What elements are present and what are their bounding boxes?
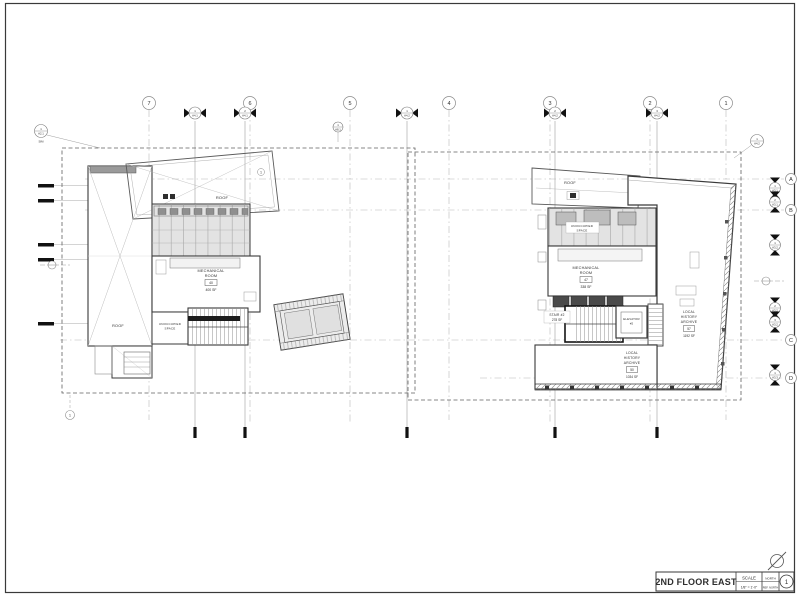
section-tick	[553, 427, 556, 438]
grid-bubbles-top: 7 6 5 4 3 2 1	[143, 97, 733, 110]
core-detail	[538, 215, 546, 229]
marker-sheet: A3.3	[772, 376, 778, 380]
drawing-sheet: 7 6 5 4 3 2 1 A B C D 1 A4.1	[0, 0, 800, 596]
right-mech-room: MECHANICAL ROOM 47 338 SF	[548, 246, 656, 296]
floor-plan-canvas: 7 6 5 4 3 2 1 A B C D 1 A4.1	[0, 0, 800, 596]
section-tick	[243, 427, 246, 438]
section-tick	[193, 427, 196, 438]
section-marker: 1 A3.2	[770, 235, 781, 256]
room-name: ELEVATOR	[623, 317, 640, 321]
section-markers-right: 1 A3.1 2 A3.1 1 A3.2 2 A3.2	[734, 135, 784, 386]
keynote-bubble: 1	[66, 395, 75, 420]
left-skylight-unit	[274, 294, 350, 350]
grid-bubble-label: 6	[248, 101, 251, 107]
datum-marker	[40, 261, 70, 269]
roof-tag: 1	[260, 171, 262, 175]
right-stair-flight2	[648, 304, 663, 346]
left-lower-room	[95, 346, 152, 378]
grid-bubble-label: C	[789, 338, 793, 344]
section-tick	[405, 427, 408, 438]
room-area: 1034 SF	[626, 375, 638, 379]
sheet-title: 2ND FLOOR EAST	[655, 577, 737, 587]
room-number: 50	[630, 368, 634, 372]
room-name: ARCHIVE	[624, 361, 641, 365]
room-number: 57	[687, 327, 691, 331]
wall-tick	[38, 322, 54, 326]
roof-label: ROOF	[564, 181, 576, 185]
room-number: 40	[209, 281, 213, 285]
grid-bubble-label: 1	[724, 101, 727, 107]
grid-bubble-label: B	[789, 208, 793, 214]
room-number: 47	[584, 278, 588, 282]
callout-bubble-sim: 1 A2.1 SIM	[35, 125, 101, 149]
floor-plan-right: ROOF UNOCCUPIED SPACE	[532, 168, 736, 390]
section-markers-top: 1 A4.1 2 A4.1 1 A4.2 2 A4.2	[184, 107, 668, 142]
room-name: LOCAL	[683, 310, 695, 314]
section-marker: 1 A3.3	[770, 365, 781, 386]
section-tick	[655, 427, 658, 438]
marker-sheet: A4.2	[654, 114, 660, 118]
callout-bubble: 1 A4.2	[734, 135, 764, 159]
grid-bubble-label: 2	[648, 101, 651, 107]
keynote-label: 1	[69, 414, 71, 418]
grid-bubble-label: D	[789, 376, 793, 382]
room-name: ROOM	[205, 274, 218, 278]
room-area: 278 SF	[552, 318, 562, 322]
right-stair: STAIR #2 278 SF	[544, 306, 623, 342]
section-marker: 3 A3.2	[770, 312, 781, 333]
room-name: #2	[630, 322, 634, 326]
room-name: HISTORY	[681, 315, 698, 319]
marker-sheet: A3.1	[772, 203, 778, 207]
room-name: UNOCCUPIED	[571, 224, 594, 228]
right-unoccupied-band: UNOCCUPIED SPACE	[548, 208, 656, 246]
scale-label: SCALE	[742, 576, 756, 581]
room-name: LOCAL	[626, 351, 638, 355]
marker-sheet: A3.2	[772, 323, 778, 327]
room-area: 338 SF	[581, 285, 592, 289]
room-name: ARCHIVE	[681, 320, 698, 324]
marker-sheet: A4.2	[552, 114, 558, 118]
grid-bubble-label: 3	[548, 101, 551, 107]
marker-sheet: A4.1	[242, 114, 248, 118]
grid-bubble-label: 5	[348, 101, 351, 107]
core-detail	[538, 252, 546, 262]
section-marker: 1 A4.2	[396, 107, 418, 119]
core-detail	[538, 300, 546, 310]
wall-tick	[38, 243, 54, 247]
room-area: 1192 SF	[683, 334, 695, 338]
datum-marker	[754, 277, 784, 285]
title-block: 2ND FLOOR EAST SCALE 1/8" = 1'-0" NORTH …	[655, 552, 794, 591]
grid-bubble-label: A	[789, 177, 793, 183]
room-area: 400 SF	[206, 288, 217, 292]
room-name: ROOM	[580, 271, 593, 275]
marker-sheet: A4.2	[754, 142, 760, 146]
roof-label: ROOF	[112, 324, 124, 328]
marker-sheet: A3.2	[772, 246, 778, 250]
callout-bubble: 1 A8.1	[333, 122, 343, 142]
marker-sheet: A2.1	[38, 132, 44, 136]
wall-tick	[38, 184, 54, 188]
marker-sim-label: SIM	[39, 140, 45, 144]
grid-bubble-label: 7	[147, 101, 150, 107]
section-marker: 1 A4.1	[184, 107, 206, 119]
marker-sheet: A4.1	[192, 114, 198, 118]
roof-label: ROOF	[216, 195, 229, 200]
marker-sheet: A4.2	[404, 114, 410, 118]
right-elevator: ELEVATOR #2	[616, 306, 647, 338]
marker-sheet: A8.1	[335, 128, 341, 132]
left-unoccupied-room: UNOCCUPIED SPACE	[152, 312, 188, 344]
room-name: SPACE	[577, 229, 588, 233]
room-name: HISTORY	[624, 356, 641, 360]
room-name: MECHANICAL	[573, 266, 600, 270]
grid-bubble-label: 4	[447, 101, 450, 107]
north-arrow-icon	[768, 552, 786, 570]
room-name: UNOCCUPIED	[159, 322, 182, 326]
room-name: SPACE	[165, 327, 176, 331]
left-mech-room: MECHANICAL ROOM 40 400 SF	[152, 256, 260, 312]
left-louver-band	[152, 204, 250, 256]
room-name: STAIR #2	[549, 313, 564, 317]
ref-north-label: REF. NORTH	[763, 586, 779, 590]
room-name: MECHANICAL	[198, 269, 225, 273]
left-roof-strip: ROOF	[88, 166, 152, 346]
floor-plan-left: ROOF ROOF 1	[88, 151, 350, 378]
wall-tick	[38, 199, 54, 203]
section-marker: 2 A3.1	[770, 192, 781, 213]
scale-value: 1/8" = 1'-0"	[741, 586, 758, 590]
north-label: NORTH	[765, 577, 776, 581]
left-stair	[188, 308, 248, 345]
right-roof-area: ROOF	[532, 168, 640, 208]
